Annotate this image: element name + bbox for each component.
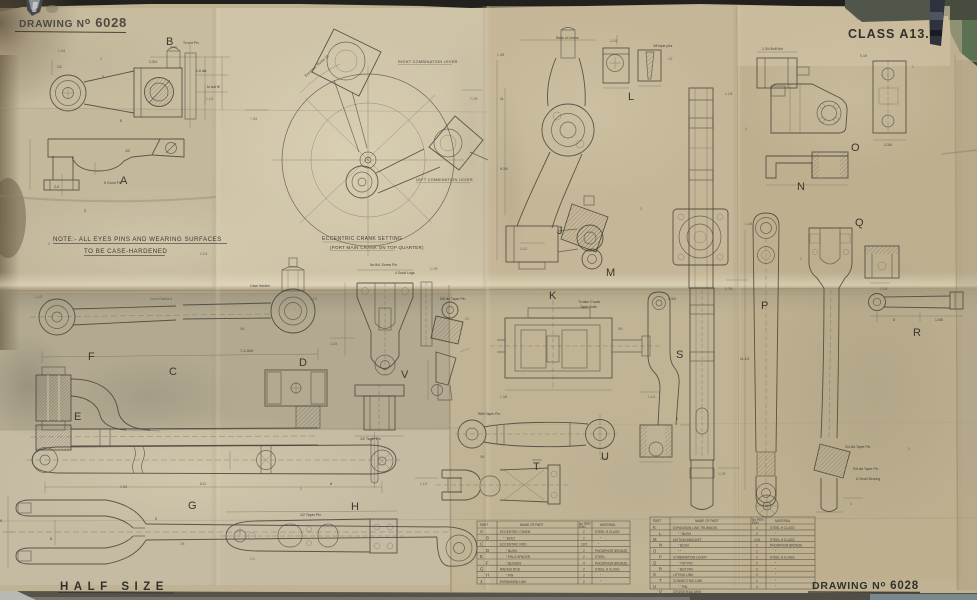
svg-text:2: 2 [800, 257, 802, 261]
svg-text:B: B [486, 536, 489, 541]
svg-text:2-1/2: 2-1/2 [520, 247, 527, 251]
svg-text:O: O [851, 142, 861, 154]
svg-text:E: E [480, 554, 483, 559]
svg-text:CONNECTING LINK: CONNECTING LINK [673, 579, 703, 583]
svg-text:MATERIAL: MATERIAL [775, 519, 791, 523]
svg-text:To take C'sunk: To take C'sunk [578, 300, 600, 304]
svg-text:5/8: 5/8 [480, 455, 485, 459]
svg-text:5/8: 5/8 [240, 327, 245, 331]
svg-text:STEEL H CLASS: STEEL H CLASS [770, 538, 795, 542]
svg-text:Taper Bolts: Taper Bolts [580, 305, 597, 309]
svg-text:1-3/8: 1-3/8 [500, 395, 507, 399]
svg-text:2: 2 [756, 556, 758, 560]
svg-text:2: 2 [756, 573, 758, 577]
svg-text:6: 6 [50, 537, 52, 541]
svg-text:M: M [653, 537, 657, 542]
svg-text:1-0: 1-0 [250, 557, 255, 561]
svg-text:G: G [480, 567, 484, 572]
svg-text:4: 4 [583, 561, 585, 565]
svg-text:RIGHT COMBINATION LEVER: RIGHT COMBINATION LEVER [398, 60, 458, 64]
svg-text:COMBINATION LEVER: COMBINATION LEVER [673, 556, 707, 560]
svg-text:2: 2 [583, 549, 585, 553]
svg-text:": " [775, 567, 776, 571]
svg-text:": " [775, 579, 776, 583]
svg-text:NAME OF PART: NAME OF PART [695, 519, 719, 523]
svg-text:1: 1 [912, 65, 914, 69]
svg-text:5 Good Fit: 5 Good Fit [104, 181, 121, 185]
svg-text:CROSSHEAD ARM: CROSSHEAD ARM [673, 590, 701, 594]
svg-text:" " BUSH: " " BUSH [678, 532, 692, 536]
svg-text:HALF SIZE: HALF SIZE [60, 581, 169, 593]
svg-text:": " [775, 585, 776, 589]
svg-text:2-7/8: 2-7/8 [725, 287, 732, 291]
svg-text:7-3/4: 7-3/4 [250, 117, 257, 121]
svg-text:LIFTING LINK: LIFTING LINK [673, 573, 694, 577]
svg-text:V: V [659, 589, 662, 594]
svg-text:L: L [628, 91, 635, 103]
svg-text:2-3/8: 2-3/8 [600, 457, 607, 461]
svg-text:" BUSHES: " BUSHES [506, 561, 521, 565]
svg-text:C: C [169, 366, 178, 378]
svg-text:3: 3 [640, 207, 642, 211]
svg-text:P: P [659, 555, 662, 560]
svg-text:EXPANSION LINK: EXPANSION LINK [500, 580, 527, 584]
svg-text:1-3/4: 1-3/4 [58, 49, 65, 53]
svg-text:1-5/8: 1-5/8 [935, 318, 943, 322]
svg-text:ENG: ENG [579, 525, 586, 529]
svg-text:1-1/8: 1-1/8 [725, 92, 732, 96]
svg-text:STEEL: STEEL [595, 555, 605, 559]
svg-text:D: D [299, 357, 308, 369]
svg-text:CLASS A13.: CLASS A13. [848, 27, 930, 41]
svg-text:DRAWING No 6028: DRAWING No 6028 [812, 580, 919, 593]
svg-text:2: 2 [583, 555, 585, 559]
svg-text:to suit fit: to suit fit [207, 85, 220, 89]
svg-text:2-0: 2-0 [54, 185, 59, 189]
svg-text:3: 3 [102, 75, 104, 79]
svg-text:V: V [401, 369, 409, 381]
svg-text:1-1/2: 1-1/2 [35, 295, 42, 299]
svg-text:5/8 dia Taper Pin: 5/8 dia Taper Pin [853, 467, 878, 471]
svg-text:1-3/8: 1-3/8 [497, 53, 504, 57]
svg-text:(PORT MAIN CRANK ON TOP QUARTE: (PORT MAIN CRANK ON TOP QUARTER) [330, 245, 424, 250]
svg-text:2-1/8: 2-1/8 [610, 39, 617, 43]
svg-text:2-3/4: 2-3/4 [884, 143, 892, 147]
svg-text:STEEL H CLASS: STEEL H CLASS [595, 568, 620, 572]
svg-text:G: G [188, 500, 198, 512]
svg-text:2-3/4: 2-3/4 [149, 60, 157, 64]
svg-text:": " [775, 573, 776, 577]
svg-text:F: F [486, 560, 489, 565]
svg-text:1-7/8: 1-7/8 [718, 472, 725, 476]
svg-text:3: 3 [300, 487, 302, 491]
svg-text:2: 2 [756, 532, 758, 536]
svg-text:3: 3 [48, 242, 50, 246]
svg-text:5/8 dia Taper Pin: 5/8 dia Taper Pin [440, 297, 465, 301]
svg-text:F: F [88, 351, 96, 363]
svg-text:A: A [480, 529, 483, 534]
svg-text:5: 5 [155, 517, 157, 521]
svg-text:T: T [659, 578, 662, 583]
svg-text:S: S [676, 349, 684, 361]
svg-text:4: 4 [745, 127, 747, 131]
svg-text:C: C [480, 542, 483, 547]
svg-text:" PIN: " PIN [506, 574, 514, 578]
svg-text:NAME OF PART: NAME OF PART [520, 523, 544, 527]
svg-text:1-1/2: 1-1/2 [420, 482, 427, 486]
svg-text:" BUSH: " BUSH [506, 549, 518, 553]
svg-text:2: 2 [756, 544, 758, 548]
svg-text:7-2-5/8: 7-2-5/8 [240, 348, 253, 353]
svg-text:19.5: 19.5 [581, 543, 587, 547]
svg-text:8: 8 [120, 119, 122, 123]
svg-text:" BUSH: " BUSH [678, 544, 690, 548]
svg-text:PHOSPHOR BRONZE: PHOSPHOR BRONZE [770, 544, 802, 548]
svg-text:N: N [659, 543, 662, 548]
svg-text:": " [775, 561, 776, 565]
svg-text:": " [598, 543, 599, 547]
svg-text:1-3/4 Bolt Nut: 1-3/4 Bolt Nut [762, 47, 783, 51]
svg-text:" " PIN: " " PIN [678, 585, 688, 589]
svg-text:PART: PART [653, 519, 661, 523]
svg-text:": " [775, 532, 776, 536]
svg-text:PHOSPHOR BRONZE: PHOSPHOR BRONZE [595, 549, 627, 553]
svg-text:5-3/8: 5-3/8 [860, 54, 867, 58]
svg-text:1/2: 1/2 [668, 57, 673, 61]
svg-text:": " [600, 537, 601, 541]
svg-text:U: U [653, 584, 656, 589]
svg-text:3: 3 [84, 209, 86, 213]
svg-text:1-1/2: 1-1/2 [648, 395, 655, 399]
svg-text:ECCENTRIC CRANK SETTING: ECCENTRIC CRANK SETTING [322, 236, 402, 242]
svg-text:STEEL H CLASS: STEEL H CLASS [595, 530, 620, 534]
svg-text:Q: Q [855, 217, 865, 229]
svg-text:PHOSPHOR BRONZE: PHOSPHOR BRONZE [595, 561, 627, 565]
svg-text:ECCENTRIC ROD: ECCENTRIC ROD [500, 543, 527, 547]
svg-text:1-1/4: 1-1/4 [310, 297, 317, 301]
svg-text:" " BOLT: " " BOLT [503, 537, 515, 541]
svg-text:P: P [761, 300, 769, 312]
svg-text:3/8 taper pins: 3/8 taper pins [653, 44, 673, 48]
svg-text:TO BE CASE-HARDENED: TO BE CASE-HARDENED [84, 248, 167, 255]
svg-text:NOTE:- ALL EYES PINS AND: NOTE:- ALL EYES PINS AND WEARING SURFACE… [53, 236, 222, 243]
svg-text:1/2: 1/2 [125, 149, 130, 153]
svg-text:8: 8 [330, 482, 332, 486]
svg-text:2: 2 [676, 417, 678, 421]
svg-text:STEEL H CLASS: STEEL H CLASS [770, 556, 795, 560]
svg-text:Case Harden: Case Harden [250, 284, 270, 288]
svg-text:1-1/2: 1-1/2 [206, 97, 213, 101]
svg-text:11-1/2: 11-1/2 [740, 357, 749, 361]
svg-text:1-3/4: 1-3/4 [668, 297, 676, 301]
svg-text:M: M [606, 267, 616, 279]
svg-text:4: 4 [756, 526, 758, 530]
svg-text:PART: PART [480, 523, 488, 527]
svg-text:13: 13 [465, 317, 469, 321]
svg-text:No 8x1 Screw Pin: No 8x1 Screw Pin [370, 263, 397, 267]
svg-text:S: S [653, 572, 656, 577]
svg-text:1/2 Taper Pin: 1/2 Taper Pin [360, 437, 381, 441]
svg-text:K: K [653, 525, 656, 530]
svg-text:1-1/8: 1-1/8 [880, 287, 887, 291]
svg-text:4: 4 [756, 585, 758, 589]
svg-text:2: 2 [583, 530, 585, 534]
svg-text:9-3/4: 9-3/4 [500, 167, 508, 171]
svg-text:2: 2 [583, 568, 585, 572]
svg-text:2-5/8: 2-5/8 [120, 485, 127, 489]
svg-text:9: 9 [0, 519, 2, 523]
svg-text:" PIN & SPACER: " PIN & SPACER [506, 555, 531, 559]
svg-text:D: D [486, 548, 489, 553]
svg-text:2: 2 [756, 579, 758, 583]
svg-text:A: A [120, 175, 128, 187]
svg-text:& Small Bearing: & Small Bearing [856, 477, 880, 481]
svg-text:8: 8 [893, 318, 895, 322]
svg-text:EXPANSION LINK TRUNNION: EXPANSION LINK TRUNNION [673, 526, 718, 530]
svg-text:" BOT PIN: " BOT PIN [678, 567, 693, 571]
svg-text:R: R [659, 566, 662, 571]
svg-text:RADIUS ROD: RADIUS ROD [500, 568, 521, 572]
svg-text:STEEL H CLASS: STEEL H CLASS [770, 526, 795, 530]
svg-text:With Taper Pin: With Taper Pin [478, 412, 500, 416]
svg-text:ENG: ENG [752, 521, 759, 525]
svg-text:2: 2 [583, 537, 585, 541]
svg-text:19.5: 19.5 [754, 538, 760, 542]
svg-text:E: E [74, 411, 82, 423]
svg-text:MATERIAL: MATERIAL [600, 523, 616, 527]
svg-text:2: 2 [756, 561, 758, 565]
svg-text:T: T [533, 461, 541, 473]
svg-text:N: N [797, 181, 806, 193]
svg-text:Curve Radius 5: Curve Radius 5 [150, 297, 172, 301]
svg-text:LEFT COMBINATION LEVER: LEFT COMBINATION LEVER [416, 178, 473, 182]
svg-text:": " [600, 580, 601, 584]
svg-text:1/2 Taper Pin: 1/2 Taper Pin [300, 513, 321, 517]
svg-text:ECCENTRIC CRANK: ECCENTRIC CRANK [500, 530, 532, 534]
svg-text:2: 2 [756, 550, 758, 554]
svg-text:" TOP PIN: " TOP PIN [678, 561, 693, 565]
svg-text:2: 2 [756, 567, 758, 571]
svg-text:7-7/8: 7-7/8 [470, 97, 477, 101]
svg-text:B: B [166, 36, 174, 48]
svg-text:11: 11 [500, 97, 504, 101]
svg-text:": " [775, 550, 776, 554]
svg-text:3/4 dia Taper Pin: 3/4 dia Taper Pin [845, 445, 870, 449]
svg-text:2-0: 2-0 [200, 482, 206, 486]
svg-text:1-5 dia: 1-5 dia [196, 69, 206, 73]
svg-text:MOTION BRACKET: MOTION BRACKET [673, 538, 702, 542]
svg-text:2: 2 [908, 447, 910, 451]
svg-text:5/8: 5/8 [618, 327, 623, 331]
svg-text:7/8: 7/8 [180, 542, 185, 546]
svg-text:": " [600, 574, 601, 578]
svg-text:J: J [480, 579, 482, 584]
svg-text:" ": " " [678, 550, 681, 554]
svg-text:H: H [351, 501, 360, 513]
svg-text:3-3/4: 3-3/4 [330, 342, 337, 346]
svg-text:Ratio of Levers: Ratio of Levers [556, 36, 579, 40]
svg-text:1-7/8: 1-7/8 [430, 267, 437, 271]
svg-text:3: 3 [850, 502, 852, 506]
svg-text:H: H [486, 573, 489, 578]
svg-text:2: 2 [583, 580, 585, 584]
svg-text:2: 2 [100, 57, 102, 61]
svg-text:4 Good Lugs: 4 Good Lugs [395, 271, 415, 275]
svg-text:2: 2 [583, 574, 585, 578]
svg-text:1/2: 1/2 [57, 65, 62, 69]
svg-text:1-3/4: 1-3/4 [745, 222, 752, 226]
svg-text:To suit Pin: To suit Pin [183, 41, 199, 45]
svg-text:R: R [913, 327, 922, 339]
svg-text:2-1/4: 2-1/4 [200, 252, 207, 256]
